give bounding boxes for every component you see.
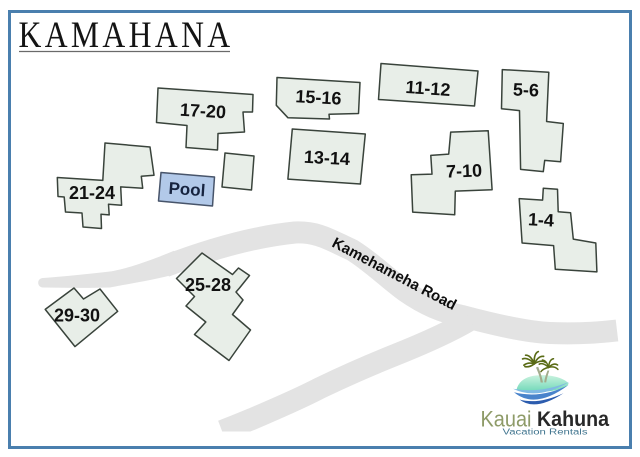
svg-text:Pool: Pool	[168, 179, 206, 201]
svg-text:1-4: 1-4	[527, 209, 554, 230]
svg-text:KAMAHANA: KAMAHANA	[19, 15, 234, 56]
svg-text:17-20: 17-20	[179, 100, 226, 123]
svg-text:29-30: 29-30	[54, 306, 100, 326]
svg-text:21-24: 21-24	[69, 183, 115, 203]
svg-text:25-28: 25-28	[185, 275, 231, 295]
svg-text:Vacation Rentals: Vacation Rentals	[503, 428, 588, 437]
svg-text:11-12: 11-12	[405, 77, 451, 100]
svg-text:13-14: 13-14	[303, 147, 350, 169]
svg-text:15-16: 15-16	[295, 86, 342, 108]
svg-text:5-6: 5-6	[513, 80, 540, 101]
svg-text:7-10: 7-10	[446, 160, 483, 181]
